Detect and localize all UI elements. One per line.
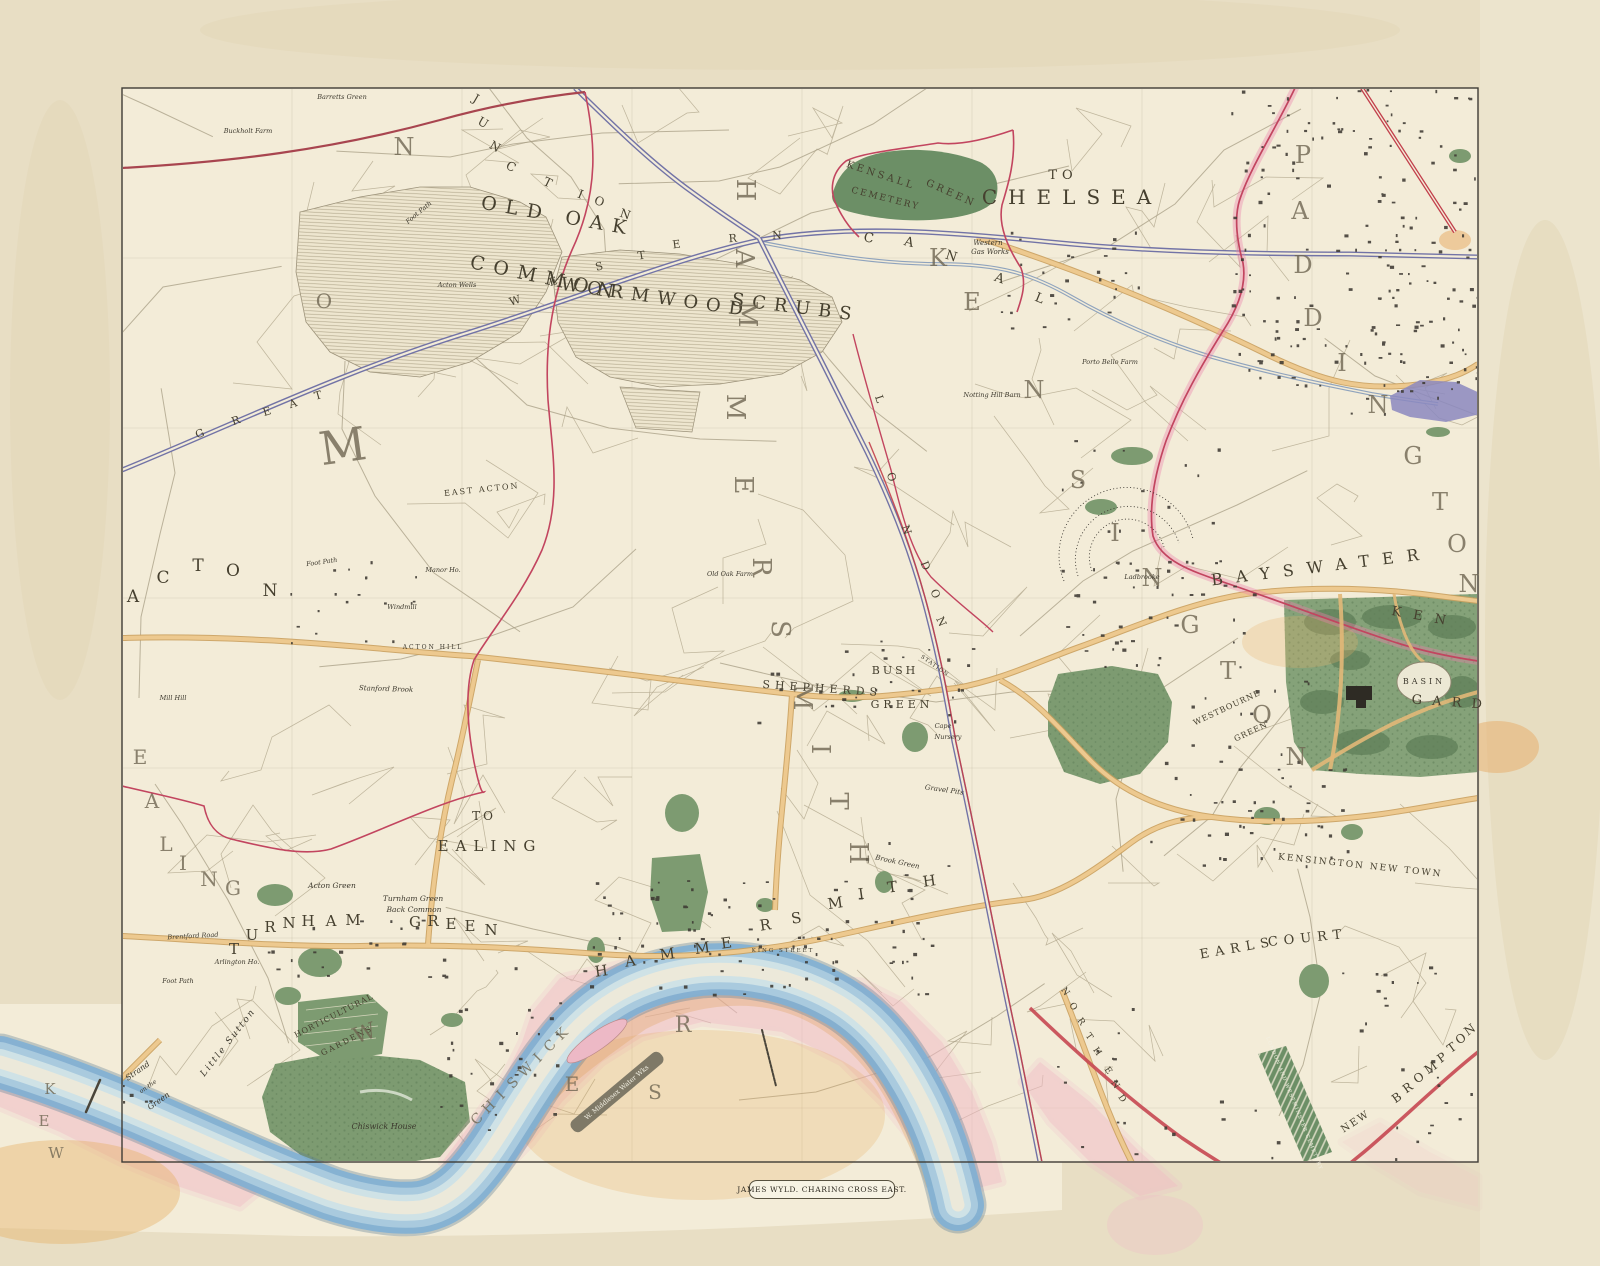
map-label-m: M: [693, 938, 711, 958]
map-label-old-oak-farm: Old Oak Farm: [707, 570, 753, 578]
map-label-n: N: [772, 229, 782, 242]
map-label-s: S: [648, 1080, 662, 1104]
map-label-nursery: Nursery: [934, 733, 962, 741]
map-label-m: M: [720, 394, 750, 421]
map-label-n: N: [263, 581, 278, 601]
map-label-a: A: [325, 912, 337, 930]
map-label-o: O: [316, 289, 332, 313]
map-label-k: K: [44, 1080, 56, 1098]
map-label-e: E: [39, 1112, 50, 1130]
map-label-d: D: [1293, 251, 1312, 279]
map-label-c: C: [156, 568, 169, 588]
map-label-u: U: [246, 926, 259, 944]
map-label-n: N: [394, 133, 415, 161]
map-label-e: E: [133, 745, 148, 769]
map-label-n: N: [1368, 391, 1389, 419]
map-label-r: R: [427, 912, 439, 930]
map-label-h: H: [730, 179, 760, 202]
map-label-ladbrooke: Ladbrooke: [1123, 573, 1159, 581]
map-sheet: OLD OAKCOMMONWORMWOODSCRUBSTOCHELSEAKENS…: [0, 0, 1600, 1266]
map-label-i: I: [1337, 349, 1346, 377]
map-label-h: H: [843, 842, 873, 865]
map-label-a: A: [1290, 197, 1309, 225]
map-label-e: E: [963, 288, 981, 316]
map-label-t: T: [192, 556, 204, 576]
map-label-e: E: [728, 476, 758, 495]
map-label-bush: BUSH: [872, 664, 918, 677]
map-label-arlington-ho: Arlington Ho.: [214, 958, 260, 966]
map-label-t: T: [1432, 488, 1448, 516]
map-label-acton-green: Acton Green: [307, 881, 356, 890]
map-label-to: TO: [472, 809, 496, 823]
map-label-n: N: [1459, 570, 1480, 598]
map-label-n: N: [282, 914, 295, 932]
map-label-western: Western: [973, 239, 1003, 247]
map-engraving: OLD OAKCOMMONWORMWOODSCRUBSTOCHELSEAKENS…: [0, 0, 1600, 1266]
map-label-o: O: [226, 561, 240, 581]
map-label-g: G: [1180, 611, 1199, 639]
map-label-m: M: [658, 944, 676, 964]
map-label-back-common: Back Common: [386, 905, 442, 914]
map-label-a: A: [126, 587, 140, 607]
map-label-acton-hill: ACTON HILL: [402, 644, 464, 651]
map-label-i: I: [179, 851, 187, 875]
map-label-manor-ho: Manor Ho.: [424, 566, 460, 574]
map-label-g: G: [225, 876, 241, 900]
map-label-barretts-green: Barretts Green: [316, 93, 367, 101]
map-label-k: K: [929, 244, 948, 272]
map-label-t: T: [823, 792, 853, 810]
map-label-porto-bello-farm: Porto Bello Farm: [1081, 358, 1138, 366]
map-label-n: N: [1024, 376, 1045, 404]
map-label-basin: BASIN: [1403, 677, 1445, 686]
map-label-turnham-green: Turnham Green: [383, 894, 443, 903]
map-label-s: S: [1070, 466, 1086, 494]
map-label-r: R: [675, 1013, 693, 1038]
map-label-w: W: [48, 1144, 64, 1162]
map-label-windmill: Windmill: [387, 603, 416, 611]
map-label-acton-wells: Acton Wells: [437, 281, 477, 289]
kensington-palace: [1346, 686, 1372, 700]
map-label-n: N: [1286, 743, 1307, 771]
map-label-n: N: [200, 867, 218, 891]
map-label-gas-works: Gas Works: [971, 248, 1009, 256]
map-label-to: TO: [1048, 168, 1077, 183]
map-label-a: A: [144, 789, 160, 813]
map-label-mill-hill: Mill Hill: [159, 694, 187, 702]
map-label-ealing: EALING: [438, 837, 543, 855]
map-label-o: O: [1252, 701, 1272, 729]
map-label-a: A: [729, 248, 759, 269]
map-label-cape: Cape: [935, 722, 952, 730]
map-label-e: E: [565, 1072, 580, 1096]
map-label-g: G: [1403, 442, 1422, 470]
map-label-h: H: [922, 871, 937, 891]
map-label-t: T: [229, 940, 239, 958]
map-label-i: I: [1110, 519, 1119, 547]
map-label-h: H: [301, 912, 314, 930]
map-label-m: M: [826, 893, 844, 913]
map-label-d: D: [1303, 304, 1322, 332]
map-label-m: M: [732, 301, 762, 328]
map-label-buckholt-farm: Buckholt Farm: [223, 127, 273, 135]
map-label-m: M: [345, 911, 360, 929]
map-label-notting-hill-barn: Notting Hill Barn: [962, 391, 1020, 399]
map-label-m: M: [316, 416, 370, 476]
map-label-g: G: [409, 913, 421, 931]
map-label-h: H: [594, 961, 609, 981]
ravenscourt-park: [650, 854, 708, 932]
map-label-t: T: [1220, 657, 1236, 685]
map-label-chelsea: CHELSEA: [982, 185, 1162, 209]
map-label-o: O: [1447, 530, 1467, 558]
map-label-n: N: [484, 921, 497, 939]
map-label-r: R: [264, 918, 276, 936]
map-label-i: I: [805, 744, 835, 754]
map-label-l: L: [159, 832, 172, 856]
map-label-p: P: [1295, 141, 1311, 169]
map-label-king-street: KING STREET: [752, 948, 815, 954]
map-label-e: E: [446, 915, 457, 933]
map-label-foot-path: Foot Path: [161, 977, 193, 985]
publisher-imprint: JAMES WYLD. CHARING CROSS EAST.: [749, 1180, 895, 1199]
map-label-s: S: [765, 620, 795, 638]
imprint-text: JAMES WYLD. CHARING CROSS EAST.: [737, 1185, 906, 1194]
margin-stain-pink: [1107, 1195, 1203, 1255]
map-label-chiswick-house: Chiswick House: [352, 1122, 417, 1131]
map-label-green: GREEN: [871, 698, 934, 711]
map-label-e: E: [465, 917, 476, 935]
map-label-r: R: [728, 232, 738, 246]
